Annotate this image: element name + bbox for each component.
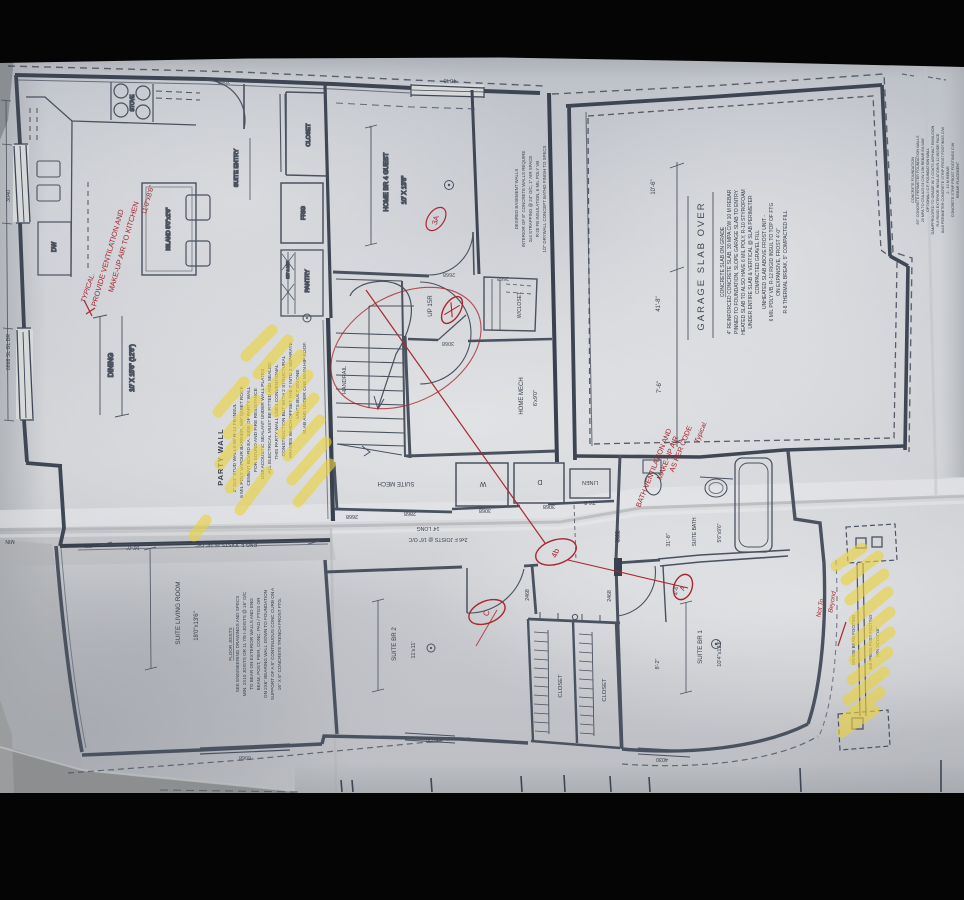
svg-text:R-8 THERMAL BREAK, 5" COMPACTE: R-8 THERMAL BREAK, 5" COMPACTED FILL bbox=[783, 210, 789, 313]
svg-text:W: W bbox=[479, 480, 486, 487]
svg-text:ALL ELECTRICAL MUST BE FITTED: ALL ELECTRICAL MUST BE FITTED AND SEALED bbox=[267, 362, 273, 474]
svg-text:HANDRAIL: HANDRAIL bbox=[342, 366, 348, 394]
svg-text:8'-2": 8'-2" bbox=[655, 659, 661, 670]
svg-text:GARAGE SLAB OVER: GARAGE SLAB OVER bbox=[696, 201, 707, 330]
svg-text:ISLAND 5'0"x2'6": ISLAND 5'0"x2'6" bbox=[166, 207, 172, 250]
svg-text:16'-0": 16'-0" bbox=[126, 544, 139, 550]
svg-text:14' LONG: 14' LONG bbox=[417, 525, 440, 531]
svg-text:BEAM, POST, PIER, CONC. PAD /: BEAM, POST, PIER, CONC. PAD / FTGS OR bbox=[256, 597, 261, 691]
svg-text:8'0" CONCRETE PERIMETER FOUNDA: 8'0" CONCRETE PERIMETER FOUNDATION WALLS bbox=[916, 135, 920, 224]
svg-text:4" REINFORCED CONCRETE SLAB, 3: 4" REINFORCED CONCRETE SLAB, 30 MPA C/W … bbox=[727, 189, 733, 334]
svg-text:DINING: DINING bbox=[108, 353, 115, 378]
svg-text:10'-6": 10'-6" bbox=[651, 179, 657, 194]
svg-text:HEATED SLAB TO ALSO HAVE 6 MIL: HEATED SLAB TO ALSO HAVE 6 MIL POLY, R-1… bbox=[741, 189, 747, 334]
svg-text:2868: 2868 bbox=[404, 510, 416, 516]
svg-text:R-8 RIGID EXTERIOR INSULATION: R-8 RIGID EXTERIOR INSULATION R-12 INSID… bbox=[936, 133, 940, 226]
svg-text:UNDER ENTIRE SLAB & VERTICAL @: UNDER ENTIRE SLAB & VERTICAL @ SLAB PERI… bbox=[748, 195, 754, 329]
svg-text:6068 SL GL DR: 6068 SL GL DR bbox=[6, 334, 12, 370]
svg-text:DAMPPROOFED TO GRADE W/ 2 COAT: DAMPPROOFED TO GRADE W/ 2 COATS ASPHALT … bbox=[931, 125, 935, 234]
svg-text:DESIRED BASEMENT WALLS: DESIRED BASEMENT WALLS bbox=[514, 169, 519, 230]
svg-text:SUITE LIVING ROOM: SUITE LIVING ROOM bbox=[175, 581, 182, 644]
svg-text:41'-8": 41'-8" bbox=[656, 296, 662, 311]
svg-text:MIN. 2X10 JOISTS OR 11 7/8 I-J: MIN. 2X10 JOISTS OR 11 7/8 I-JOISTS @ 16… bbox=[242, 591, 247, 696]
svg-text:SUITE BR 1: SUITE BR 1 bbox=[697, 630, 704, 664]
svg-text:R-20 FB INSULATION, 6 MIL POLY: R-20 FB INSULATION, 6 MIL POLY VB bbox=[535, 161, 540, 238]
svg-text:2x6 F JOISTS @ 16" O/C: 2x6 F JOISTS @ 16" O/C bbox=[408, 536, 467, 542]
svg-text:2668: 2668 bbox=[616, 530, 622, 542]
svg-text:ON EXPANSIVE, FROST 4'-0": ON EXPANSIVE, FROST 4'-0" bbox=[776, 228, 782, 296]
svg-text:PINNED TO FOUNDATION, SLOPE GA: PINNED TO FOUNDATION, SLOPE GARAGE SLAB … bbox=[734, 189, 740, 334]
svg-text:2x4 STRAPPING @ 24" O/C, 1" AI: 2x4 STRAPPING @ 24" O/C, 1" AIR SPACE bbox=[528, 156, 533, 243]
svg-text:2468: 2468 bbox=[607, 590, 613, 602]
svg-text:ON 2X6" BEARING WALL DOWN TO F: ON 2X6" BEARING WALL DOWN TO FOUNDATION bbox=[263, 590, 268, 698]
svg-text:6 MIL POLY VB, R-12 RIGID INSU: 6 MIL POLY VB, R-12 RIGID INSUL TO TOP O… bbox=[769, 203, 775, 322]
svg-text:REBAR PLACEMENT: REBAR PLACEMENT bbox=[956, 161, 960, 198]
svg-text:7'-6": 7'-6" bbox=[657, 381, 663, 393]
svg-text:SUITE BATH: SUITE BATH bbox=[692, 517, 698, 546]
svg-text:6'x9'0": 6'x9'0" bbox=[533, 390, 539, 406]
svg-text:COMPACTED GRAVEL FILL: COMPACTED GRAVEL FILL bbox=[755, 230, 761, 294]
svg-text:7'6": 7'6" bbox=[84, 544, 92, 549]
svg-text:SUPPORT OF A 8" CONTINUOUS CON: SUPPORT OF A 8" CONTINUOUS CONC CURB ON … bbox=[270, 587, 275, 700]
svg-text:USE ACOUSTIC SEALANT UNDER WAL: USE ACOUSTIC SEALANT UNDER WALL PLATES bbox=[260, 369, 266, 480]
svg-text:INTERIOR OF 8" CONCRETE WALLS: INTERIOR OF 8" CONCRETE WALLS REQUIRE bbox=[521, 151, 526, 248]
svg-text:3068: 3068 bbox=[218, 78, 230, 84]
svg-text:4030: 4030 bbox=[656, 756, 668, 762]
svg-text:20 MPA TO CSA A23.04 C/W 10M R: 20 MPA TO CSA A23.04 C/W 10M REBAR EA WA… bbox=[921, 137, 925, 222]
svg-text:SUITE MECH: SUITE MECH bbox=[377, 480, 414, 486]
svg-text:2668: 2668 bbox=[346, 513, 358, 519]
svg-text:2668: 2668 bbox=[443, 271, 455, 277]
svg-text:STOVE: STOVE bbox=[130, 94, 136, 112]
svg-text:DW: DW bbox=[52, 242, 58, 252]
svg-text:LINEN: LINEN bbox=[582, 479, 598, 485]
svg-text:2'6 8: 2'6 8 bbox=[584, 499, 596, 505]
svg-text:2468: 2468 bbox=[525, 589, 531, 601]
svg-text:2 - 10 M REBAR: 2 - 10 M REBAR bbox=[946, 166, 950, 194]
svg-text:MIN: MIN bbox=[5, 538, 15, 544]
svg-text:HOME BR 4 GUEST: HOME BR 4 GUEST bbox=[383, 152, 390, 211]
svg-text:5'6"x9'6": 5'6"x9'6" bbox=[717, 523, 723, 542]
svg-text:PANTRY: PANTRY bbox=[305, 269, 311, 292]
svg-text:3040: 3040 bbox=[6, 190, 12, 202]
svg-text:OPTIONAL I.C.F. FOUNDATION WAL: OPTIONAL I.C.F. FOUNDATION WALL bbox=[926, 148, 930, 212]
svg-text:D: D bbox=[537, 478, 542, 485]
svg-text:10' X 13'6": 10' X 13'6" bbox=[402, 176, 408, 204]
svg-text:UP 15R: UP 15R bbox=[427, 295, 434, 317]
svg-text:16" X 8" CONCRETE TRENCH FROST: 16" X 8" CONCRETE TRENCH FROST FTG. bbox=[277, 598, 282, 690]
svg-text:UNHEATED SLAB ABOVE FROST UNIT: UNHEATED SLAB ABOVE FROST UNIT - bbox=[762, 215, 768, 309]
svg-text:HOME MECH: HOME MECH bbox=[519, 377, 525, 414]
svg-text:CLOSET: CLOSET bbox=[602, 678, 608, 702]
svg-text:KIT & MW: KIT & MW bbox=[286, 261, 290, 279]
svg-text:CONCRETE FOUNDATION: CONCRETE FOUNDATION bbox=[911, 157, 915, 203]
svg-text:8x16 PERIMETER CONCRETE STRIP: 8x16 PERIMETER CONCRETE STRIP FROST FOOT… bbox=[941, 126, 945, 233]
svg-text:18'0"x13'6": 18'0"x13'6" bbox=[194, 611, 200, 641]
svg-text:1/2" DRYWALL CONCEPT BATHD FIN: 1/2" DRYWALL CONCEPT BATHD FINISH TO SPE… bbox=[542, 145, 547, 252]
svg-text:FRIG: FRIG bbox=[301, 206, 307, 220]
svg-text:SUITE BR 2: SUITE BR 2 bbox=[391, 627, 398, 661]
svg-text:31'-8": 31'-8" bbox=[666, 533, 672, 546]
svg-text:3068: 3068 bbox=[543, 503, 555, 509]
svg-text:4040: 4040 bbox=[444, 77, 457, 83]
svg-text:CLOSET: CLOSET bbox=[558, 674, 564, 698]
svg-text:SEE ENGINEERING DRAWINGS AND S: SEE ENGINEERING DRAWINGS AND SPECS bbox=[235, 596, 240, 693]
svg-text:3068: 3068 bbox=[479, 507, 491, 513]
svg-text:ENG F JOISTS @ 16" O/C: ENG F JOISTS @ 16" O/C bbox=[195, 541, 257, 547]
svg-text:10' X 15'6" (12'6"): 10' X 15'6" (12'6") bbox=[130, 344, 136, 391]
svg-text:TO BEAR ON EXTERIOR WALLS AND: TO BEAR ON EXTERIOR WALLS AND ENG bbox=[249, 598, 254, 690]
svg-text:CONCRETE SLAB ON GRADE: CONCRETE SLAB ON GRADE bbox=[720, 226, 726, 297]
svg-text:W/CLOSET: W/CLOSET bbox=[517, 292, 523, 318]
svg-text:CONCRETE STRIP FROST FOOTINGS: CONCRETE STRIP FROST FOOTINGS C/W bbox=[951, 142, 955, 217]
svg-text:CLOSET: CLOSET bbox=[306, 123, 312, 147]
svg-text:FLOOR JOISTS: FLOOR JOISTS bbox=[228, 627, 233, 660]
svg-text:3068: 3068 bbox=[442, 340, 454, 346]
svg-text:11'x11': 11'x11' bbox=[411, 641, 417, 658]
svg-text:SUITE ENTRY: SUITE ENTRY bbox=[234, 149, 240, 187]
